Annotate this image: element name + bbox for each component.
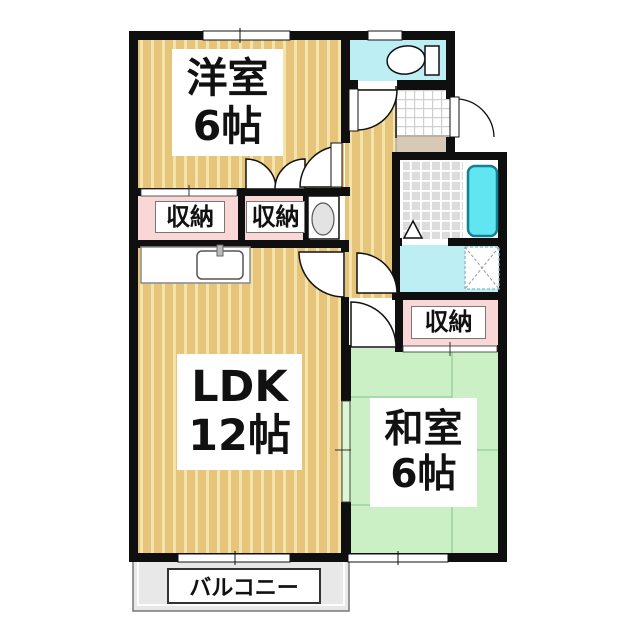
floor-plan: 洋室 6帖 LDK 12帖 和室 6帖 収納 収納 収納 バルコニー [0, 0, 640, 640]
washer-pan-icon [465, 247, 499, 289]
floor-plan-drawing [0, 0, 640, 640]
vanity-basin-icon [308, 196, 339, 239]
balcony-label: バルコニー [167, 568, 321, 604]
ldk-window [178, 554, 290, 562]
toilet-window [368, 31, 402, 40]
bathtub-icon [468, 166, 497, 236]
storage1-label: 収納 [155, 201, 225, 233]
entrance-door-leaf [450, 97, 459, 137]
western-room-door-leaf [331, 143, 342, 187]
storage2-label: 収納 [246, 201, 305, 233]
entrance-door-swing [459, 99, 494, 137]
japanese-room-label: 和室 6帖 [370, 398, 477, 507]
western-room-window [203, 31, 290, 40]
entry-step [396, 136, 450, 154]
storage3-label: 収納 [411, 306, 486, 339]
toilet-door-leaf [349, 89, 358, 131]
western-room-label: 洋室 6帖 [172, 49, 283, 156]
ldk-label: LDK 12帖 [177, 354, 302, 470]
kitchen-sink-icon [141, 245, 250, 283]
entry-tile-floor [396, 86, 452, 140]
ldk-japanese-room-sliding-door [342, 401, 350, 502]
